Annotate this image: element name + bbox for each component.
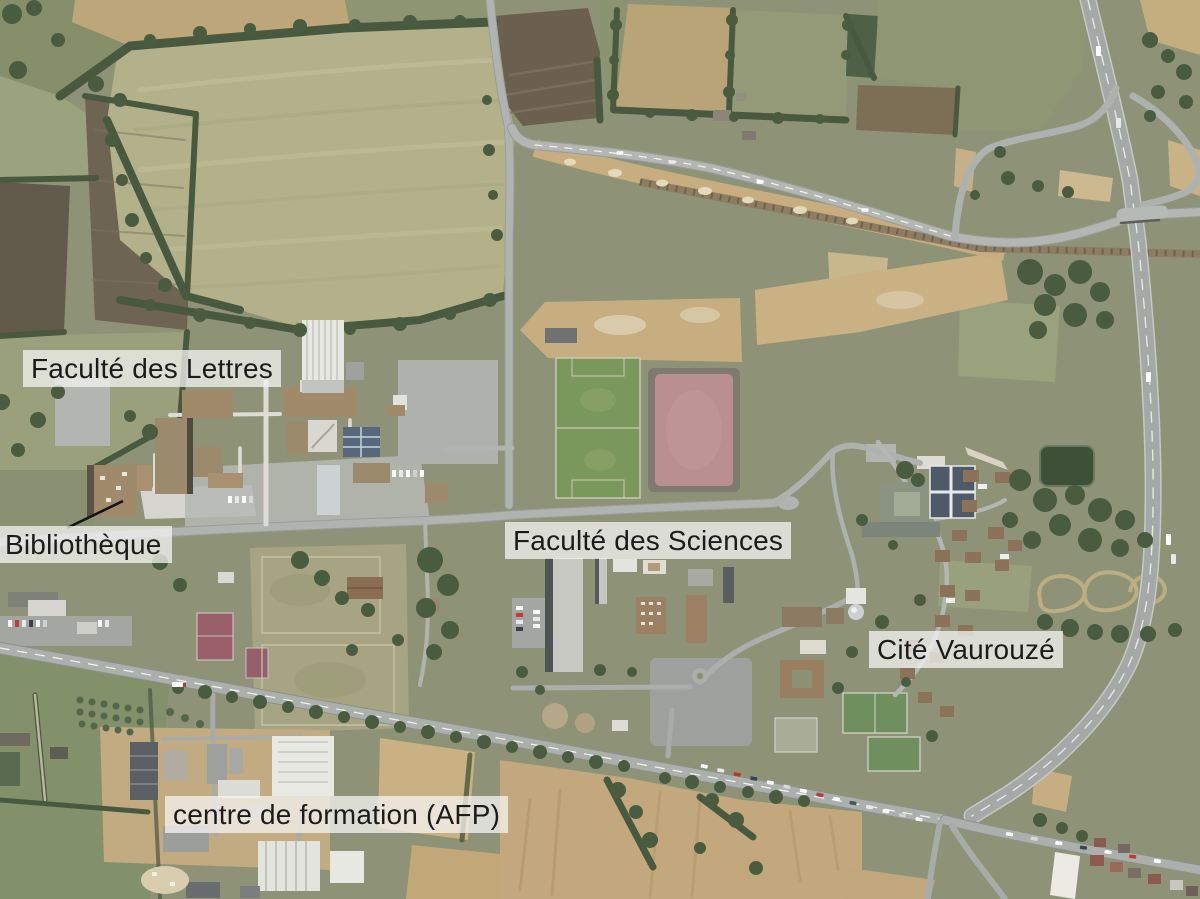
- annotated-aerial-map: Faculté des Lettres Bibliothèque Faculté…: [0, 0, 1200, 899]
- label-faculte-des-lettres: Faculté des Lettres: [23, 350, 281, 387]
- football-pitch: [556, 358, 640, 498]
- pond: [1040, 446, 1094, 486]
- label-centre-de-formation-afp: centre de formation (AFP): [165, 796, 508, 833]
- label-faculte-des-sciences: Faculté des Sciences: [505, 522, 791, 559]
- library-building: [87, 465, 137, 517]
- label-cite-vaurouze: Cité Vaurouzé: [869, 631, 1063, 668]
- label-bibliotheque: Bibliothèque: [0, 526, 172, 563]
- aerial-photo: [0, 0, 1200, 899]
- afp-main-hall: [272, 736, 334, 796]
- athletics-track: [648, 368, 740, 492]
